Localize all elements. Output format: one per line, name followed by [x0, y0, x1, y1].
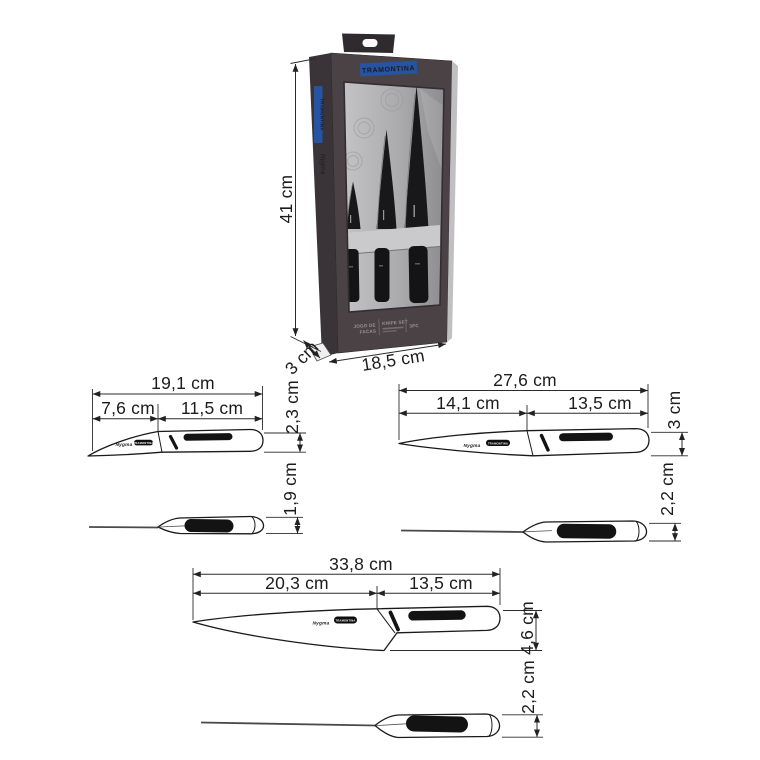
box-illustration: TRAMONTINA TRAMONTINA Nygma JOGO DE FACA…	[309, 34, 458, 362]
product-dimension-diagram: TRAMONTINA TRAMONTINA Nygma JOGO DE FACA…	[0, 0, 760, 760]
paring-height-label: 2,3 cm	[282, 380, 302, 434]
spine-line-label: Nygma	[319, 154, 326, 175]
utility-knife-top-view	[401, 521, 647, 542]
paring-thickness-label: 1,9 cm	[280, 462, 300, 516]
utility-height-label: 3 cm	[664, 391, 684, 430]
footer-right: 3PC	[409, 323, 419, 329]
paring-knife-top-view	[89, 517, 264, 534]
utility-handle-label: 13,5 cm	[568, 393, 632, 413]
chef-knife-diagram: 33,8 cm 20,3 cm 13,5 cm Nygma TRAMONTINA…	[193, 554, 543, 738]
utility-knife-side-view: Nygma TRAMONTINA	[399, 429, 649, 456]
utility-blade-badge-label: TRAMONTINA	[488, 441, 508, 445]
boxed-handles	[345, 246, 428, 303]
utility-blade-mark: Nygma	[464, 443, 481, 449]
paring-knife-side-view: Nygma TRAMONTINA	[88, 430, 263, 457]
box-window-content	[344, 82, 444, 312]
chef-blade-badge-label: TRAMONTINA	[335, 619, 355, 623]
utility-blade-label: 14,1 cm	[436, 393, 500, 413]
paring-blade-badge-label: TRAMONTINA	[133, 441, 153, 445]
utility-knife-diagram: 27,6 cm 14,1 cm 13,5 cm Nygma TRAMONTINA…	[399, 370, 688, 542]
paring-knife-diagram: 19,1 cm 7,6 cm 11,5 cm Nygma TRAMONTINA …	[88, 373, 306, 534]
paring-blade-label: 7,6 cm	[101, 398, 155, 418]
chef-blade-label: 20,3 cm	[265, 573, 329, 593]
chef-knife-side-view: Nygma TRAMONTINA	[193, 606, 500, 650]
chef-height-label: 4,6 cm	[517, 601, 537, 655]
chef-thickness-label: 2,2 cm	[518, 660, 538, 714]
utility-thickness-label: 2,2 cm	[657, 462, 677, 516]
paring-blade-mark: Nygma	[116, 442, 133, 448]
paring-handle-label: 11,5 cm	[181, 398, 243, 418]
box-height-label: 41 cm	[276, 175, 296, 224]
chef-handle-label: 13,5 cm	[409, 573, 473, 593]
paring-total-label: 19,1 cm	[151, 373, 215, 393]
chef-total-label: 33,8 cm	[329, 554, 393, 574]
chef-blade-mark: Nygma	[313, 621, 330, 627]
chef-knife-top-view	[201, 714, 500, 738]
spine-brand-label: TRAMONTINA	[320, 98, 325, 131]
diagram-svg: TRAMONTINA TRAMONTINA Nygma JOGO DE FACA…	[0, 0, 760, 760]
hang-tab-slot	[363, 39, 378, 47]
utility-total-label: 27,6 cm	[493, 370, 557, 390]
